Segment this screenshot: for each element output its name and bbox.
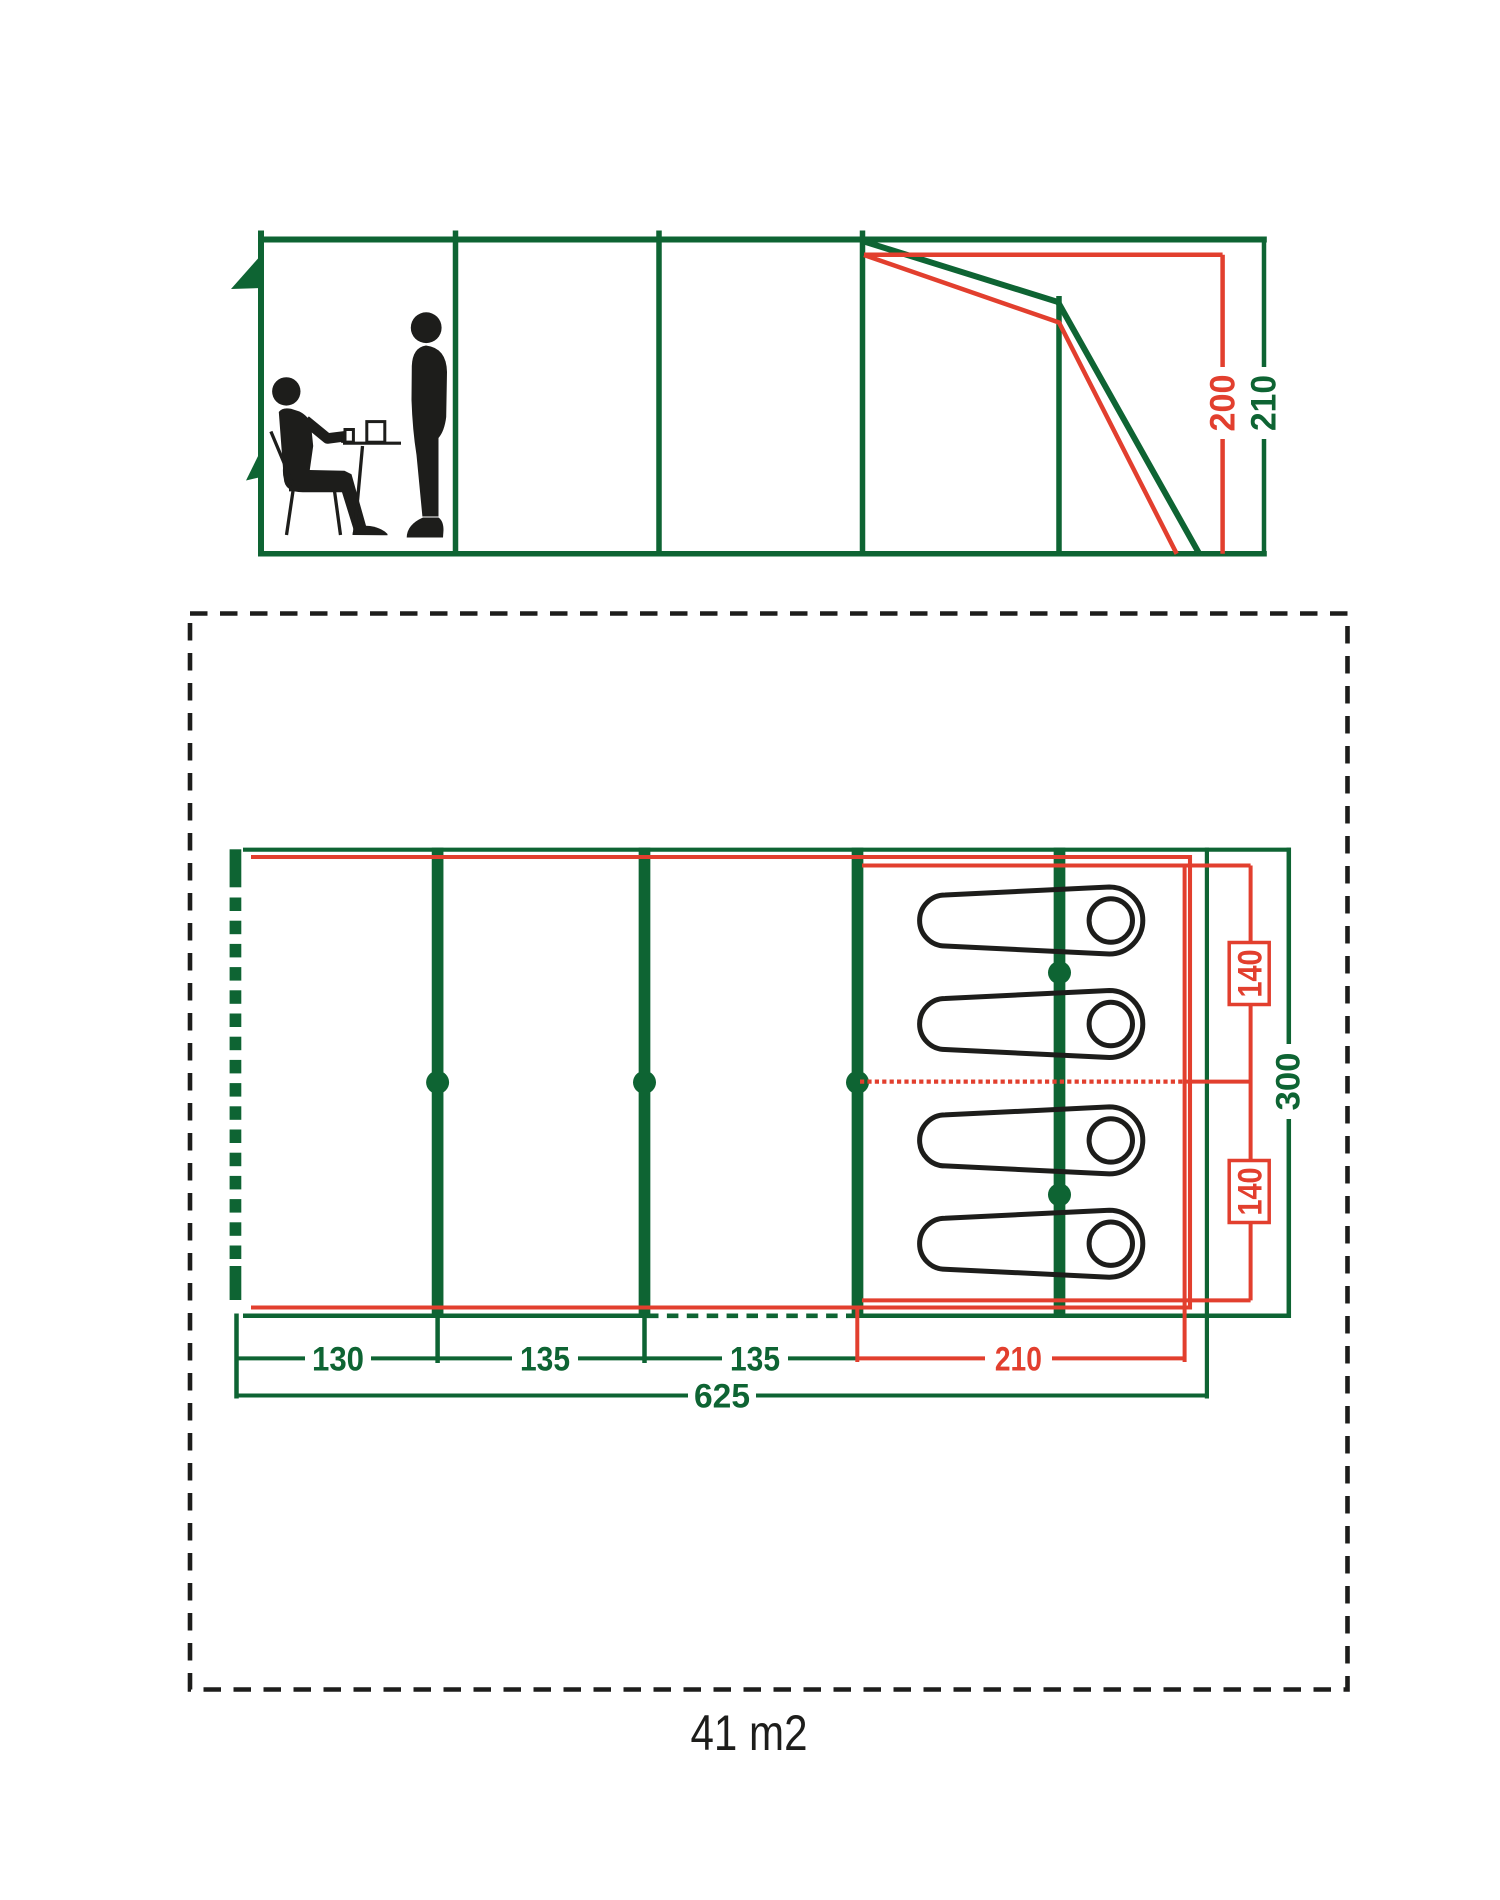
- svg-text:200: 200: [1203, 375, 1242, 432]
- svg-text:210: 210: [995, 1341, 1042, 1379]
- svg-text:130: 130: [312, 1341, 364, 1379]
- svg-text:140: 140: [1231, 1168, 1269, 1216]
- svg-text:300: 300: [1270, 1053, 1308, 1111]
- svg-text:625: 625: [694, 1378, 750, 1416]
- svg-text:135: 135: [520, 1341, 570, 1379]
- svg-text:210: 210: [1244, 375, 1283, 431]
- svg-text:41 m2: 41 m2: [691, 1705, 808, 1761]
- svg-text:140: 140: [1231, 950, 1269, 998]
- svg-text:135: 135: [730, 1341, 780, 1379]
